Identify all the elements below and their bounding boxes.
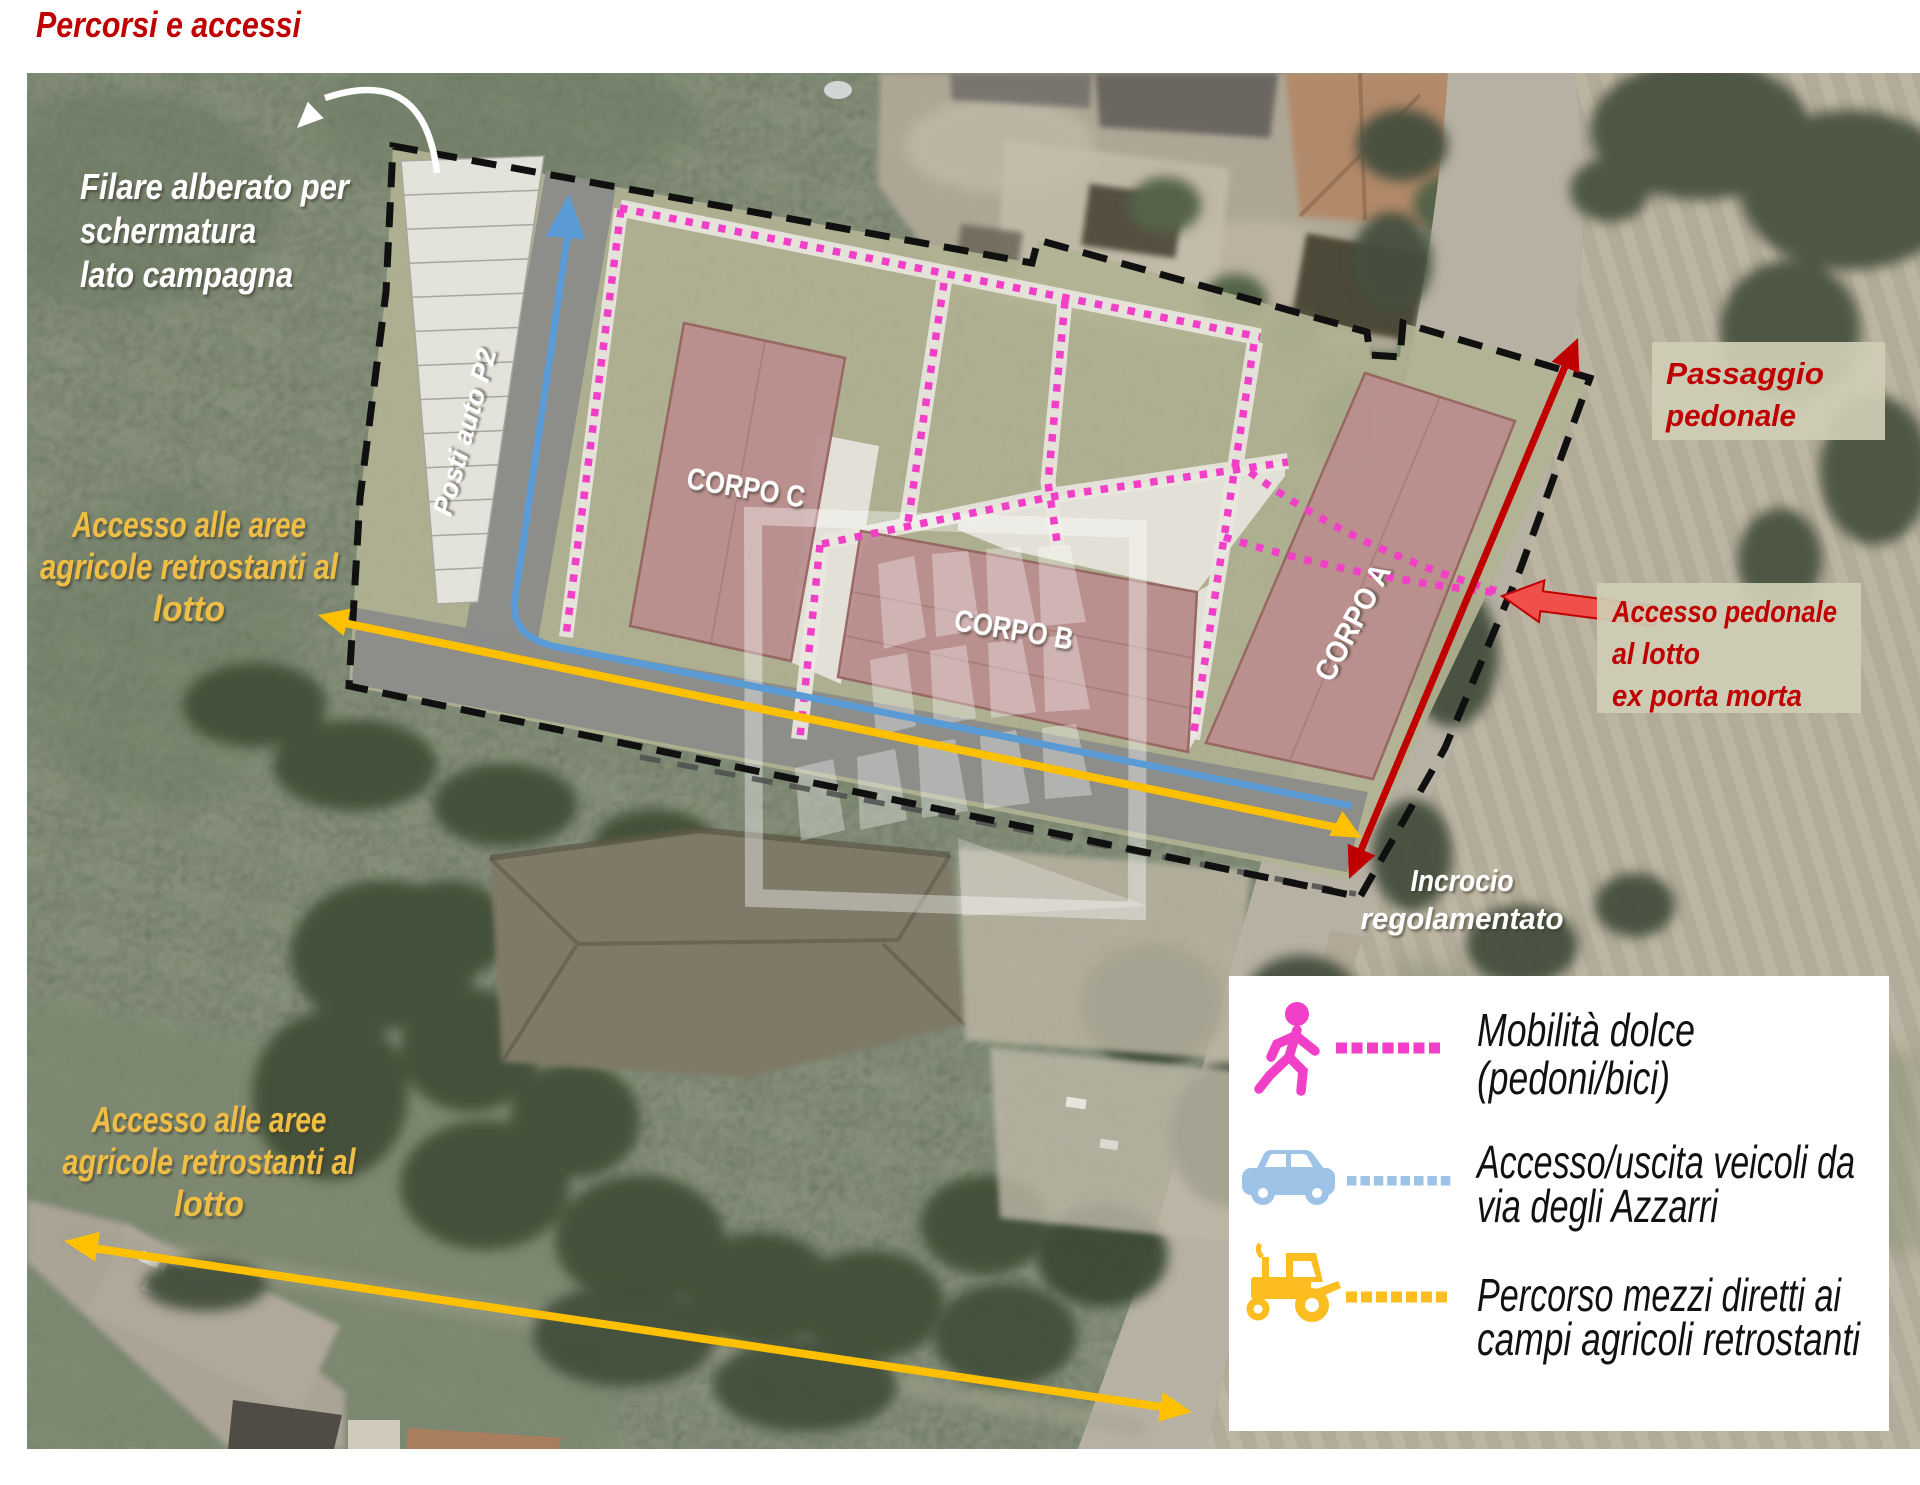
svg-text:Accesso alle aree: Accesso alle aree — [91, 1099, 327, 1140]
svg-text:via degli Azzarri: via degli Azzarri — [1477, 1180, 1719, 1232]
svg-text:lotto: lotto — [153, 588, 225, 629]
svg-text:Accesso alle aree: Accesso alle aree — [71, 504, 306, 545]
svg-text:Filare alberato per: Filare alberato per — [80, 166, 351, 207]
svg-text:ex porta morta: ex porta morta — [1612, 678, 1802, 713]
svg-text:pedonale: pedonale — [1665, 398, 1796, 433]
svg-text:regolamentato: regolamentato — [1361, 901, 1564, 936]
svg-text:lato campagna: lato campagna — [80, 254, 293, 295]
svg-text:(pedoni/bici): (pedoni/bici) — [1477, 1052, 1670, 1104]
svg-text:al lotto: al lotto — [1612, 636, 1700, 671]
svg-text:Accesso pedonale: Accesso pedonale — [1611, 594, 1837, 629]
svg-text:Incrocio: Incrocio — [1411, 863, 1514, 898]
svg-text:Percorsi e accessi: Percorsi e accessi — [36, 4, 302, 45]
svg-text:lotto: lotto — [174, 1183, 244, 1224]
svg-text:schermatura: schermatura — [80, 210, 256, 251]
svg-text:agricole retrostanti al: agricole retrostanti al — [40, 546, 339, 587]
svg-text:campi agricoli retrostanti: campi agricoli retrostanti — [1477, 1313, 1861, 1365]
svg-text:Mobilità dolce: Mobilità dolce — [1477, 1004, 1695, 1056]
svg-text:Passaggio: Passaggio — [1666, 356, 1824, 391]
svg-text:agricole retrostanti al: agricole retrostanti al — [63, 1141, 357, 1182]
